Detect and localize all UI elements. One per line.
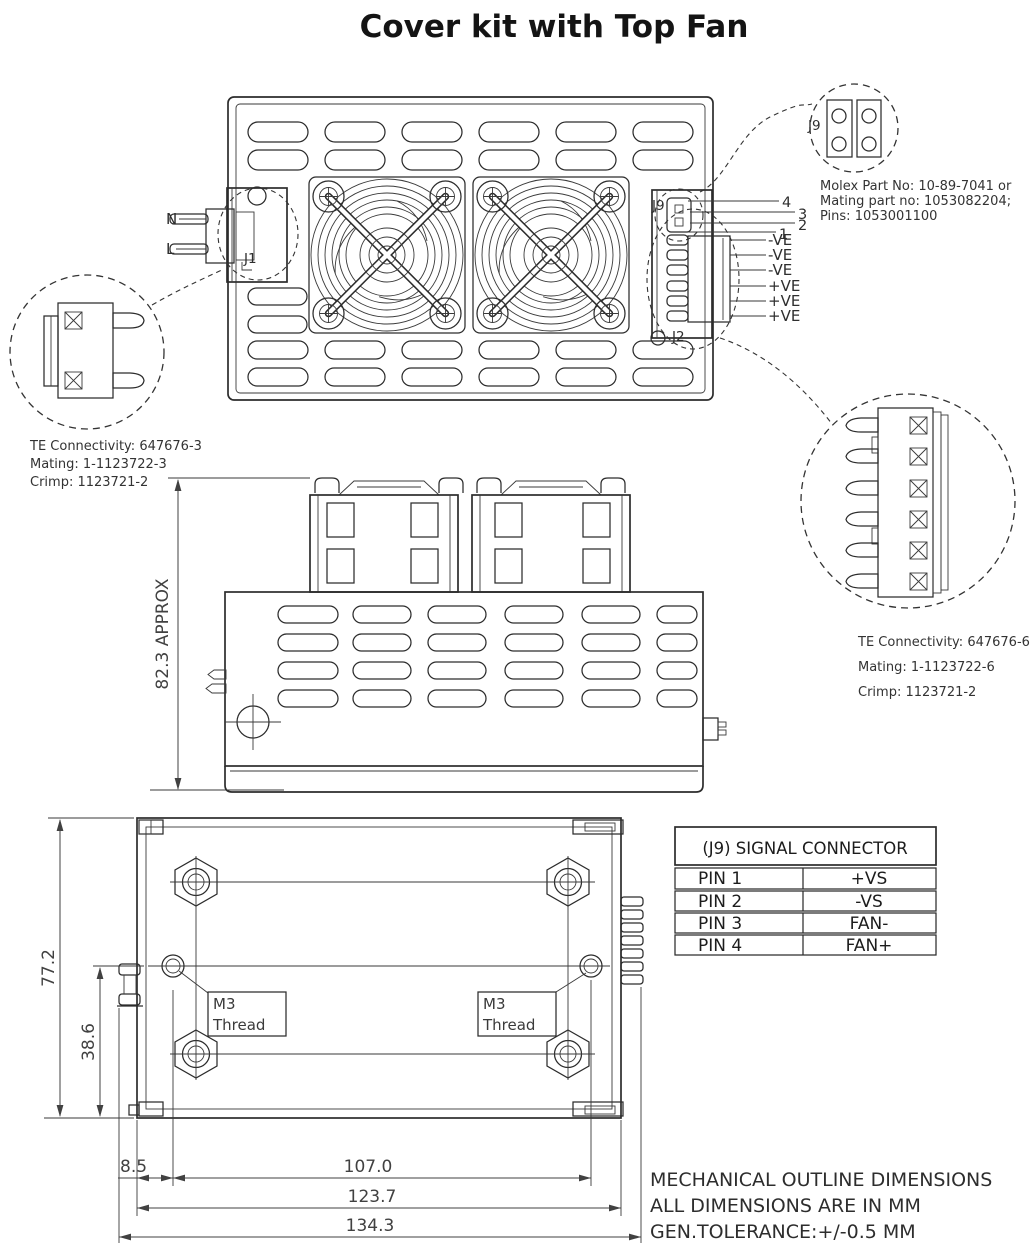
label-j2: J2: [671, 329, 685, 345]
te-right-line1: TE Connectivity: 647676-6: [857, 635, 1030, 650]
molex-note-line2: Mating part no: 1053082204;: [820, 194, 1011, 209]
dim-77: 77.2: [39, 818, 134, 1118]
bottom-ac-connector: [117, 964, 143, 1006]
label-j1: J1: [243, 251, 257, 267]
bottom-output-pins: [621, 897, 643, 984]
general-notes: MECHANICAL OUTLINE DIMENSIONS ALL DIMENS…: [650, 1169, 992, 1243]
table-cell-sig3: FAN-: [850, 914, 889, 934]
signal-table-title: (J9) SIGNAL CONNECTOR: [702, 839, 907, 858]
dim-text-38: 38.6: [79, 1023, 99, 1061]
note-line2: ALL DIMENSIONS ARE IN MM: [650, 1195, 921, 1217]
table-cell-pin4: PIN 4: [698, 936, 742, 956]
datum-target-icon: [225, 694, 281, 750]
j2-pin-label-6: +VE: [768, 307, 800, 325]
j2-pin-leaders: -VE -VE -VE +VE +VE +VE: [730, 231, 800, 325]
j9-connector: [667, 198, 691, 232]
te-right-line3: Crimp: 1123721-2: [858, 685, 976, 700]
dim-38: 38.6: [79, 966, 144, 1117]
j2-connector: [667, 235, 730, 322]
dim-text-82: 82.3 APPROX: [153, 578, 173, 689]
bottom-view: M3 Thread M3 Thread 77.2 38.6: [39, 818, 643, 1243]
top-view-vent-slots: [248, 122, 693, 386]
m3-callout-right: M3 Thread: [478, 973, 586, 1036]
fan-left: [309, 177, 465, 333]
table-cell-pin3: PIN 3: [698, 914, 742, 934]
table-cell-sig4: FAN+: [846, 936, 893, 956]
m3-label-line2: Thread: [212, 1016, 265, 1034]
te-right-line2: Mating: 1-1123722-6: [858, 660, 995, 675]
molex-note-line3: Pins: 1053001100: [820, 209, 937, 224]
side-fan-housing-right: [472, 478, 630, 592]
table-cell-sig2: -VS: [855, 892, 883, 912]
label-j9: J9: [651, 198, 665, 214]
te-left-line1: TE Connectivity: 647676-3: [29, 439, 202, 454]
drawing-page: Cover kit with Top Fan N L: [0, 0, 1030, 1249]
dim-text-134: 134.3: [346, 1216, 395, 1236]
table-cell-pin1: PIN 1: [698, 869, 742, 889]
note-line3: GEN.TOLERANCE:+/-0.5 MM: [650, 1221, 916, 1243]
side-fan-housing-left: [310, 478, 463, 592]
label-line: L: [166, 240, 175, 258]
page-title: Cover kit with Top Fan: [360, 9, 749, 45]
pin-number-4: 4: [782, 195, 791, 211]
note-line1: MECHANICAL OUTLINE DIMENSIONS: [650, 1169, 992, 1191]
m3-label-line2: Thread: [482, 1016, 535, 1034]
dim-text-8-5: 8.5: [120, 1157, 147, 1177]
m3-callout-left: M3 Thread: [179, 971, 286, 1036]
label-neutral: N: [166, 210, 177, 228]
te-left-line2: Mating: 1-1123722-3: [30, 457, 167, 472]
dim-text-107: 107.0: [344, 1157, 393, 1177]
technical-drawing: Cover kit with Top Fan N L: [0, 0, 1030, 1249]
detail-top-right: J9 Molex Part No: 10-89-7041 or Mating p…: [807, 84, 1012, 224]
te-left-line3: Crimp: 1123721-2: [30, 475, 148, 490]
signal-table: (J9) SIGNAL CONNECTOR PIN 1 +VS PIN 2 -V…: [675, 827, 936, 956]
table-cell-sig1: +VS: [851, 869, 888, 889]
side-view: 82.3 APPROX: [150, 478, 726, 792]
m3-label-line1: M3: [213, 995, 236, 1013]
side-view-vent-slots: [278, 606, 697, 707]
m3-label-line1: M3: [483, 995, 506, 1013]
fan-right: [473, 177, 629, 333]
detail-left: TE Connectivity: 647676-3 Mating: 1-1123…: [10, 275, 202, 490]
detail-right: TE Connectivity: 647676-6 Mating: 1-1123…: [801, 394, 1030, 700]
table-cell-pin2: PIN 2: [698, 892, 742, 912]
pin-number-2: 2: [798, 218, 807, 234]
dim-text-77: 77.2: [39, 949, 59, 987]
dim-text-123: 123.7: [348, 1187, 397, 1207]
molex-note-line1: Molex Part No: 10-89-7041 or: [820, 179, 1012, 194]
top-view: N L J1 J9 4 3 2 1: [166, 97, 807, 400]
detail-j9-label: J9: [807, 118, 821, 134]
